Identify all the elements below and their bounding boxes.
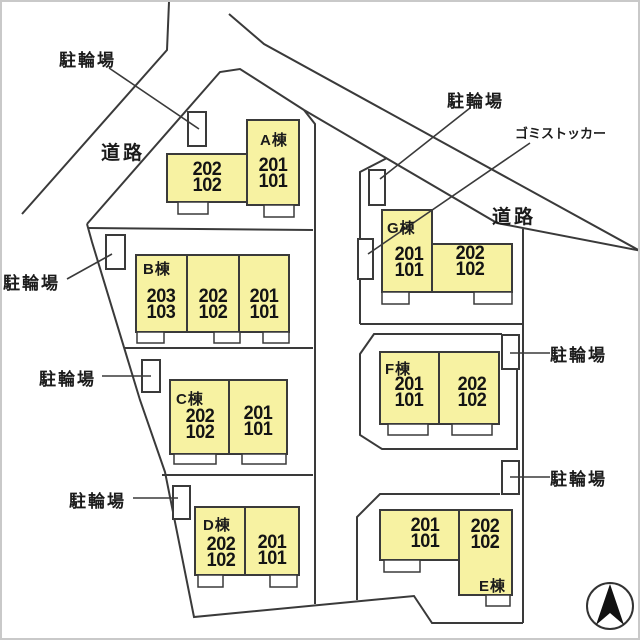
building-e-units-east: 202 102 xyxy=(463,519,507,551)
boundary-center-vertical xyxy=(304,110,315,604)
bike-parking-rect-b xyxy=(106,235,125,269)
bike-parking-label-4: 駐輪場 xyxy=(69,487,126,512)
building-d-units-west: 202 102 xyxy=(199,537,243,569)
building-f-units-east: 202 102 xyxy=(450,377,494,409)
building-g-units-east: 202 102 xyxy=(448,246,492,278)
building-b-name: B棟 xyxy=(143,258,171,279)
bike-parking-rect-d xyxy=(173,486,190,519)
road-label-1: 道路 xyxy=(101,138,145,165)
road-edge-left xyxy=(22,2,169,214)
bike-parking-rect-g xyxy=(369,170,385,205)
bike-parking-rect-f xyxy=(502,335,519,369)
bike-parking-label-1: 駐輪場 xyxy=(59,46,116,71)
building-d-units-east: 201 101 xyxy=(250,535,294,567)
garbage-stocker-rect xyxy=(358,239,373,279)
building-e-units-west: 201 101 xyxy=(403,518,447,550)
bike-parking-label-6: 駐輪場 xyxy=(550,341,607,366)
building-f-units-west: 201 101 xyxy=(387,377,431,409)
building-b-units-3: 201 101 xyxy=(242,289,286,321)
bike-parking-label-2: 駐輪場 xyxy=(3,269,60,294)
bike-parking-rect-a xyxy=(188,112,206,146)
building-g-name: G棟 xyxy=(387,217,416,238)
site-plan: 駐輪場 駐輪場 駐輪場 駐輪場 駐輪場 駐輪場 駐輪場 道路 道路 ゴミストッカ… xyxy=(0,0,640,640)
building-b-units-2: 202 102 xyxy=(191,289,235,321)
building-a-units-west: 202 102 xyxy=(185,162,229,194)
bike-parking-label-7: 駐輪場 xyxy=(550,465,607,490)
bike-parking-label-3: 駐輪場 xyxy=(39,365,96,390)
road-label-2: 道路 xyxy=(492,202,536,229)
building-c-units-east: 201 101 xyxy=(236,406,280,438)
north-arrow-icon xyxy=(587,583,633,629)
site-plan-drawing xyxy=(2,2,640,640)
building-a-name: A棟 xyxy=(260,129,288,150)
building-b-units-1: 203 103 xyxy=(139,289,183,321)
building-g-units-west: 201 101 xyxy=(387,247,431,279)
divider-a-b xyxy=(88,228,313,230)
garbage-stocker-label: ゴミストッカー xyxy=(515,123,606,142)
building-c-units-west: 202 102 xyxy=(178,409,222,441)
building-d-name: D棟 xyxy=(203,514,231,535)
bike-parking-label-5: 駐輪場 xyxy=(447,87,504,112)
building-a-units-east: 201 101 xyxy=(251,158,295,190)
building-e-name: E棟 xyxy=(479,575,506,596)
